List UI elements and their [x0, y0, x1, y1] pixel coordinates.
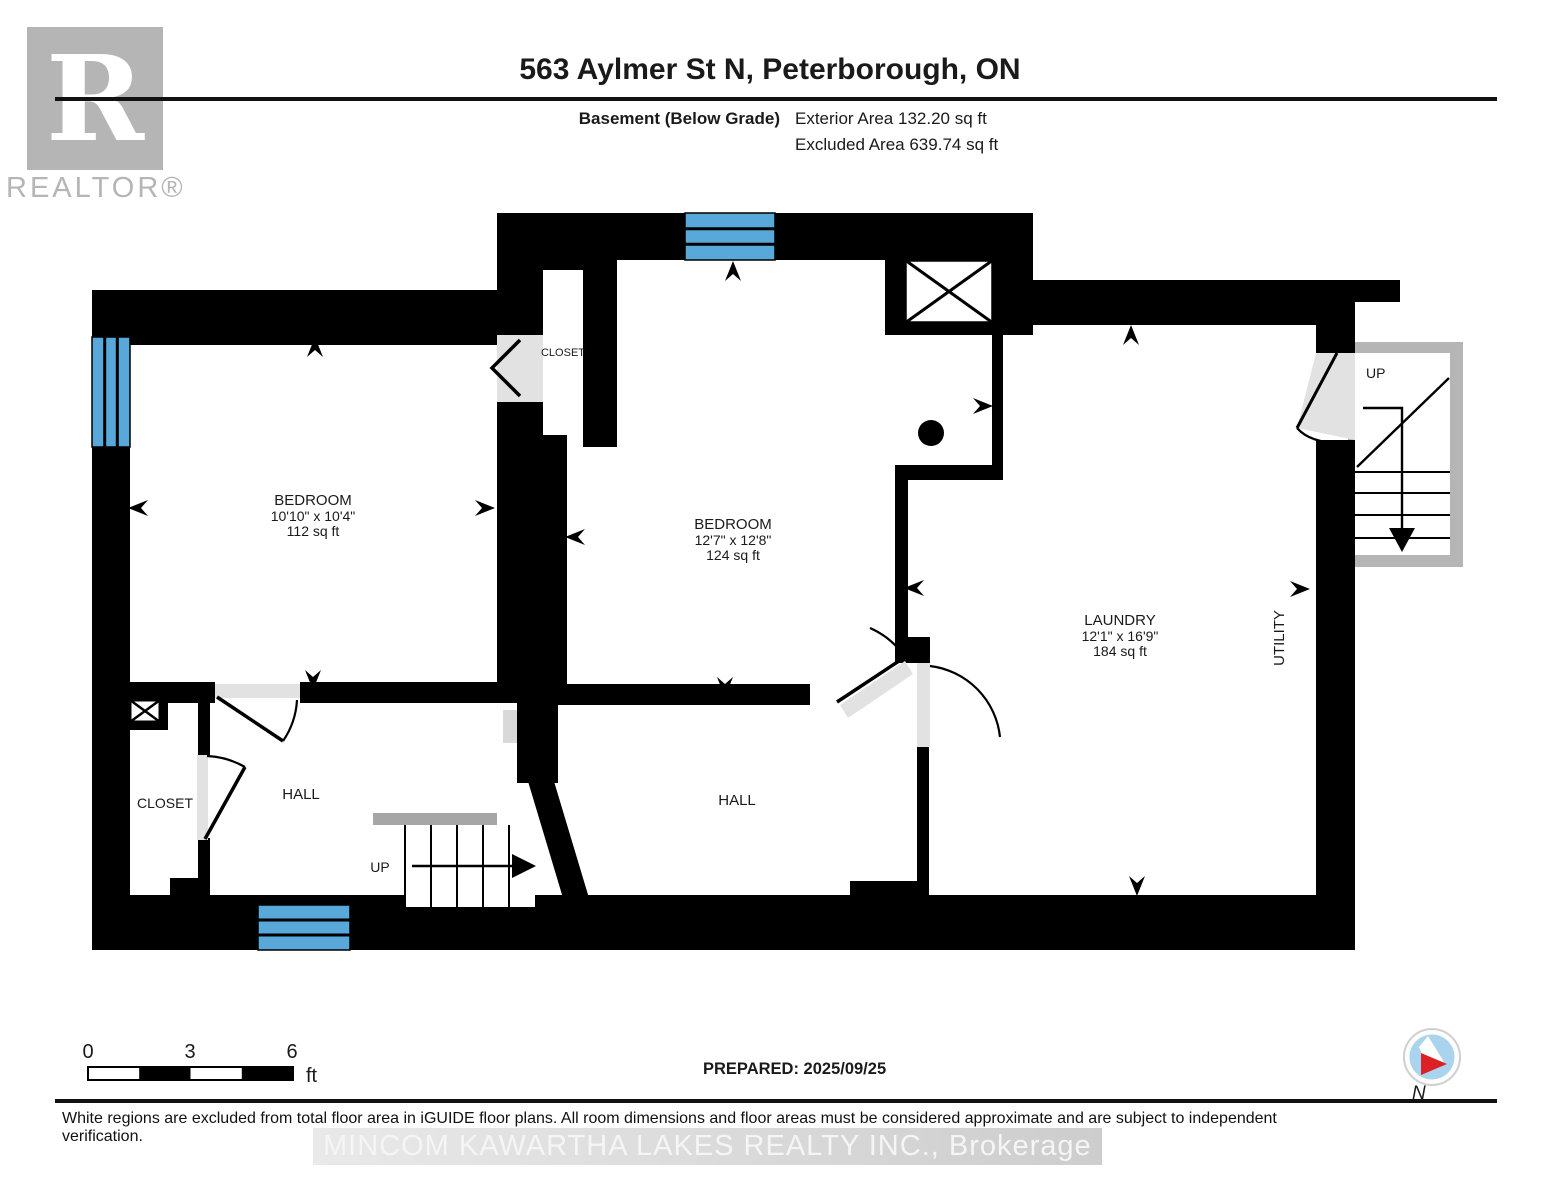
scale-tick-3: 3 — [184, 1041, 195, 1063]
room-dims-laundry: 12'1" x 16'9" — [1082, 628, 1159, 644]
room-label-closet-left: CLOSET — [137, 795, 193, 811]
window-left — [92, 337, 130, 447]
room-label-hall-left: HALL — [282, 786, 320, 803]
door-bedroom-left — [215, 684, 300, 741]
room-dims-bedroom-left: 10'10" x 10'4" — [271, 508, 356, 524]
scale-tick-0: 0 — [82, 1041, 93, 1063]
compass-icon: N — [1404, 1029, 1460, 1104]
scale-unit: ft — [306, 1065, 318, 1087]
prepared-date: PREPARED: 2025/09/25 — [703, 1060, 886, 1079]
door-closet-left — [197, 755, 245, 840]
stairs-up-label-exterior: UP — [1366, 365, 1385, 381]
brokerage-watermark: MINCOM KAWARTHA LAKES REALTY INC., Broke… — [313, 1128, 1102, 1165]
room-area-bedroom-middle: 124 sq ft — [706, 547, 760, 563]
floorplan-drawing: BEDROOM 10'10" x 10'4" 112 sq ft BEDROOM… — [0, 0, 1553, 1200]
door-stairs-right — [1297, 353, 1355, 443]
scale-tick-6: 6 — [286, 1041, 297, 1063]
room-labels: BEDROOM 10'10" x 10'4" 112 sq ft BEDROOM… — [137, 347, 1385, 875]
floorplan-page: { "header": { "title": "563 Aylmer St N,… — [0, 0, 1553, 1200]
support-column-icon — [918, 420, 944, 446]
chimney-box-icon — [905, 260, 993, 323]
room-label-utility: UTILITY — [1271, 610, 1288, 666]
page-title: 563 Aylmer St N, Peterborough, ON — [0, 53, 1540, 87]
room-label-laundry: LAUNDRY — [1084, 612, 1155, 629]
door-laundry — [917, 663, 1000, 747]
room-label-hall-right: HALL — [718, 792, 756, 809]
scale-bar: 0 3 6 ft — [82, 1041, 317, 1087]
room-label-bedroom-middle: BEDROOM — [694, 516, 772, 533]
room-area-bedroom-left: 112 sq ft — [287, 523, 340, 539]
doors — [197, 335, 1355, 840]
room-label-bedroom-left: BEDROOM — [274, 492, 352, 509]
window-top — [685, 213, 775, 260]
stair-handrail — [373, 813, 497, 825]
walls — [92, 213, 1400, 950]
footer-divider — [55, 1099, 1497, 1103]
window-bottom — [258, 905, 350, 950]
room-area-laundry: 184 sq ft — [1093, 643, 1147, 659]
vent-box-icon — [130, 700, 160, 722]
room-dims-bedroom-middle: 12'7" x 12'8" — [695, 532, 772, 548]
realtor-wordmark: REALTOR® — [6, 172, 186, 205]
staircase-hall-up — [373, 710, 536, 907]
stairs-up-label-interior: UP — [370, 859, 389, 875]
door-closet-middle — [492, 335, 543, 402]
title-divider — [55, 97, 1497, 101]
room-label-closet-middle: CLOSET — [541, 347, 585, 359]
